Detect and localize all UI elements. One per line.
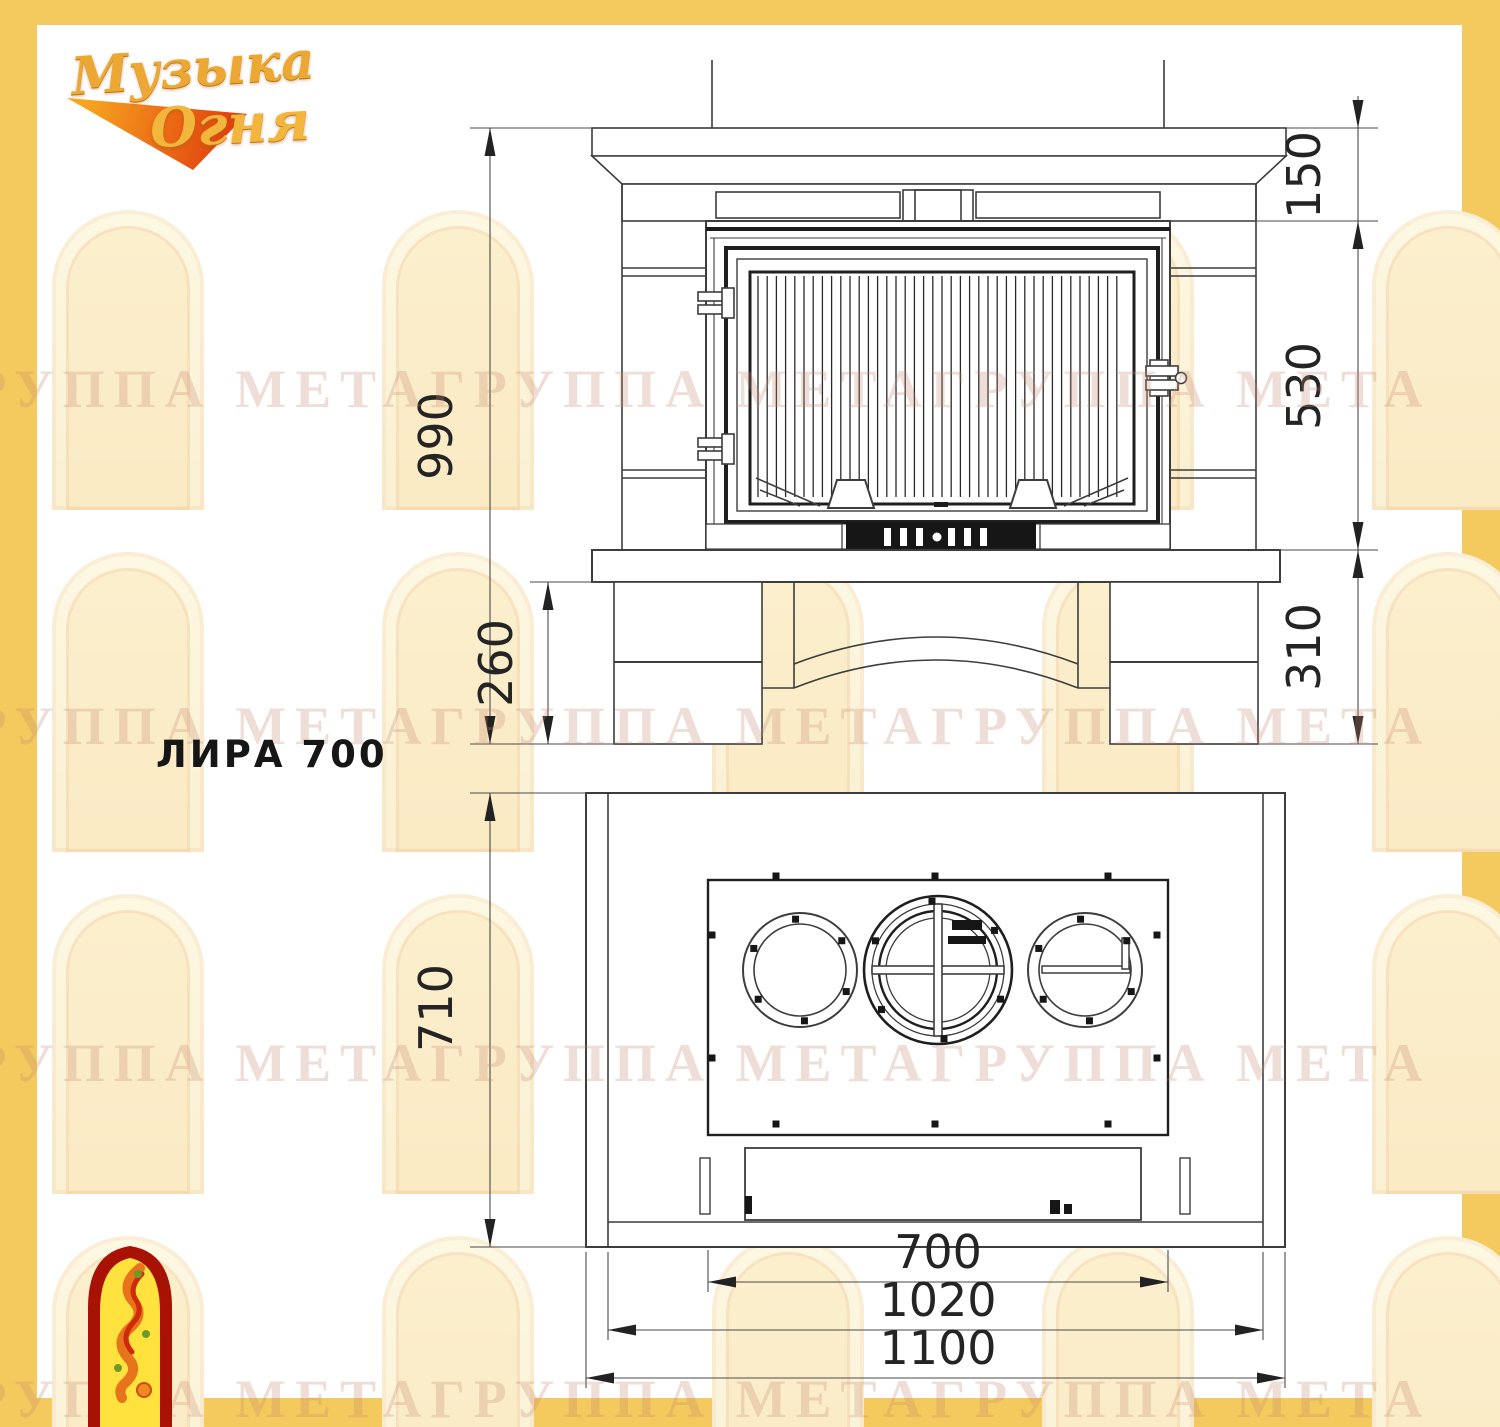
dim-label-260: 260	[469, 619, 523, 707]
brand-name-line2: Огня	[148, 88, 311, 160]
dim-label-150: 150	[1277, 131, 1331, 219]
dim-label-1020: 1020	[879, 1273, 996, 1327]
dim-label-710: 710	[409, 964, 463, 1052]
dim-label-990: 990	[409, 392, 463, 480]
technical-drawing: 990 260 150 530 310 710 700 1020 1100	[0, 0, 1500, 1427]
door-latch	[1146, 360, 1187, 396]
dim-label-310: 310	[1277, 603, 1331, 691]
product-title: ЛИРА 700	[156, 733, 388, 776]
firebox-insert	[698, 221, 1187, 552]
hearth-slab	[592, 550, 1280, 582]
dim-label-700: 700	[894, 1225, 982, 1279]
dim-label-530: 530	[1277, 342, 1331, 430]
brand-logo: Музыка Огня	[55, 30, 355, 180]
base-with-arch	[614, 582, 1258, 744]
mantel-shelf	[592, 128, 1286, 156]
andiron-left	[828, 480, 874, 508]
scanned-page: 990 260 150 530 310 710 700 1020 1100 ГР…	[0, 0, 1500, 1427]
front-view-drawing	[470, 60, 1378, 744]
dim-label-1100: 1100	[879, 1321, 996, 1375]
plan-flue-center	[864, 896, 1012, 1044]
plan-view-drawing	[470, 793, 1285, 1388]
mantel-bevel	[592, 156, 1286, 184]
fire-lizard-emblem-icon	[80, 1238, 180, 1427]
andiron-right	[1010, 480, 1056, 508]
plan-front-frame	[745, 1148, 1141, 1220]
